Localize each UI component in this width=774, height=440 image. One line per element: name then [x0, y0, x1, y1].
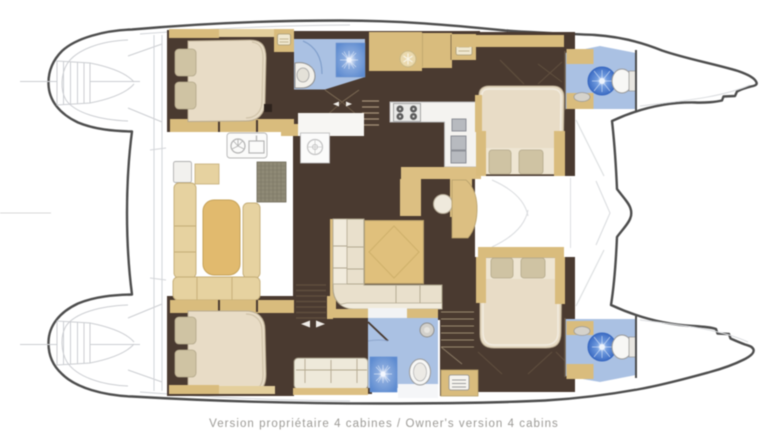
svg-text:Version propriétaire 4 cabines: Version propriétaire 4 cabines / Owner's…: [209, 418, 559, 430]
